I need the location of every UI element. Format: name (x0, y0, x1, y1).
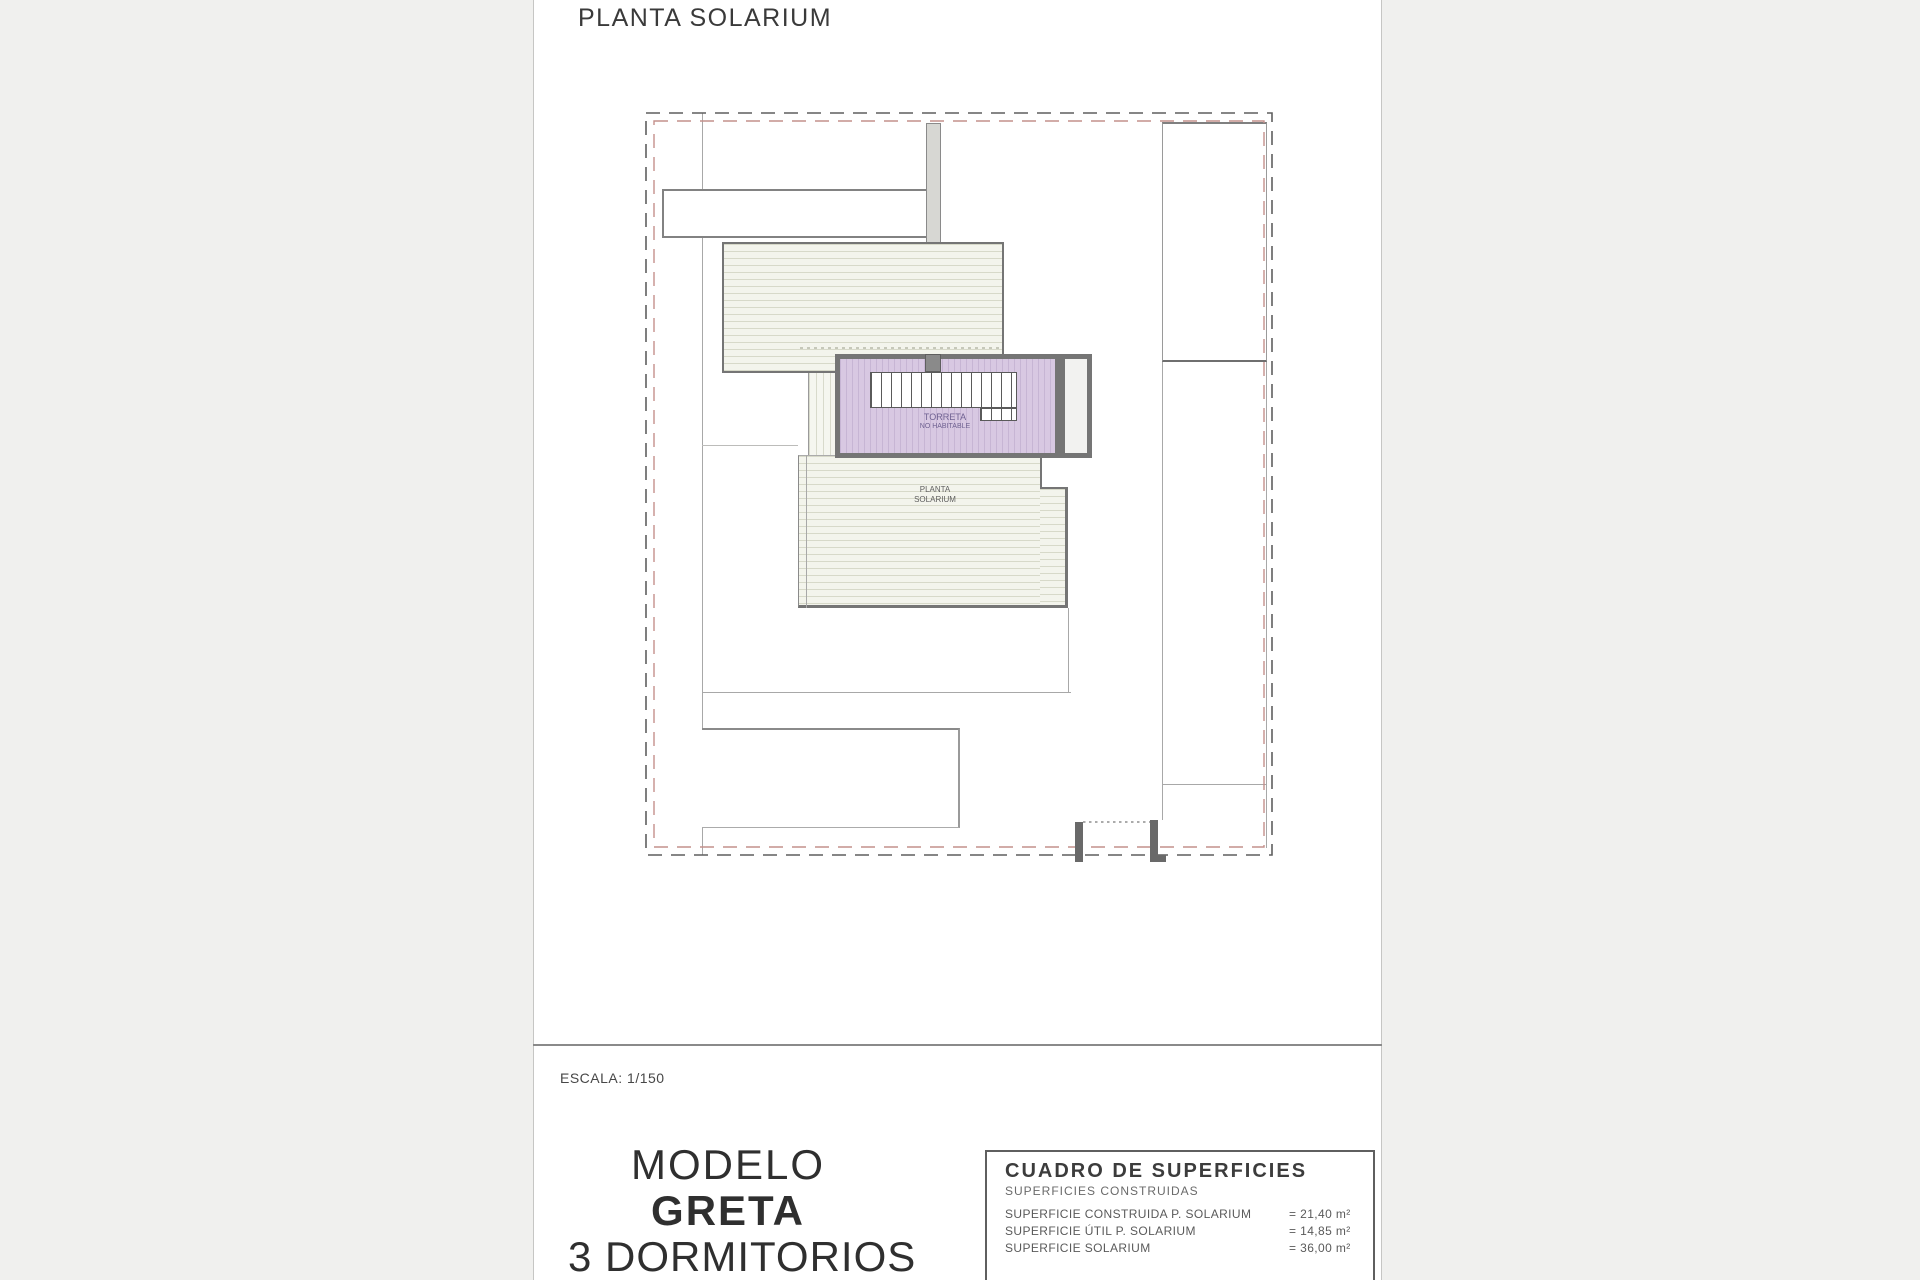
model-word: MODELO (568, 1142, 888, 1188)
surfaces-row-1-value: = 21,40 m² (1289, 1207, 1351, 1221)
terrace-inner-edge-line (806, 455, 807, 608)
solarium-label-line2: SOLARIUM (875, 495, 995, 505)
solarium-terrace-deck (798, 455, 1040, 608)
torreta-right-wall (1060, 354, 1092, 458)
surfaces-table-title: CUADRO DE SUPERFICIES (1005, 1160, 1307, 1183)
torreta-label: TORRETA NO HABITABLE (885, 412, 1005, 432)
eave-notch-line (702, 445, 798, 446)
torreta-label-line2: NO HABITABLE (885, 422, 1005, 432)
right-wing-right-edge-line (1266, 362, 1267, 848)
model-bedrooms: 3 DORMITORIOS (568, 1234, 888, 1280)
plan-title: PLANTA SOLARIUM (578, 4, 832, 33)
solarium-label: PLANTA SOLARIUM (875, 485, 995, 505)
solarium-label-line1: PLANTA (875, 485, 995, 495)
roof-step-strip (808, 373, 837, 455)
stair-newel-post (925, 354, 941, 372)
neighbor-block-outline (1162, 122, 1267, 362)
lower-plot-line-horizontal (702, 692, 1071, 693)
surfaces-row-2-value: = 14,85 m² (1289, 1224, 1351, 1238)
terrace-step-wall (1040, 453, 1042, 489)
titleblock-separator-line (533, 1044, 1382, 1046)
stair-treads-upper (870, 372, 1017, 408)
surfaces-row-2-label: SUPERFICIE ÚTIL P. SOLARIUM (1005, 1224, 1196, 1238)
surfaces-row-1: SUPERFICIE CONSTRUIDA P. SOLARIUM = 21,4… (1005, 1207, 1365, 1224)
gate-jamb-left (1075, 822, 1083, 862)
gate-jamb-right-foot (1150, 855, 1166, 862)
model-title-block: MODELO GRETA 3 DORMITORIOS (568, 1142, 888, 1280)
scale-note: ESCALA: 1/150 (560, 1070, 665, 1086)
surfaces-row-3-label: SUPERFICIE SOLARIUM (1005, 1241, 1151, 1255)
torreta-label-line1: TORRETA (885, 412, 1005, 422)
model-name: GRETA (568, 1188, 888, 1234)
right-wing-bottom-line (1162, 784, 1267, 785)
pillar-strip (926, 123, 941, 260)
surfaces-row-1-label: SUPERFICIE CONSTRUIDA P. SOLARIUM (1005, 1207, 1251, 1221)
surfaces-row-3: SUPERFICIE SOLARIUM = 36,00 m² (1005, 1241, 1365, 1258)
lower-plot-line-vertical (1068, 608, 1069, 692)
right-wing-left-edge-line (1162, 362, 1163, 820)
surfaces-row-2: SUPERFICIE ÚTIL P. SOLARIUM = 14,85 m² (1005, 1224, 1365, 1241)
surfaces-table-subtitle: SUPERFICIES CONSTRUIDAS (1005, 1184, 1199, 1198)
pergola-bar (662, 189, 940, 238)
surfaces-row-3-value: = 36,00 m² (1289, 1241, 1351, 1255)
architectural-drawing-canvas: PLANTA SOLARIUM TORRETA NO HABITABLE PLA… (0, 0, 1920, 1280)
terrace-right-extension (1040, 487, 1068, 608)
lower-annex-outline (702, 728, 960, 828)
surfaces-table-box: CUADRO DE SUPERFICIES SUPERFICIES CONSTR… (985, 1150, 1375, 1280)
